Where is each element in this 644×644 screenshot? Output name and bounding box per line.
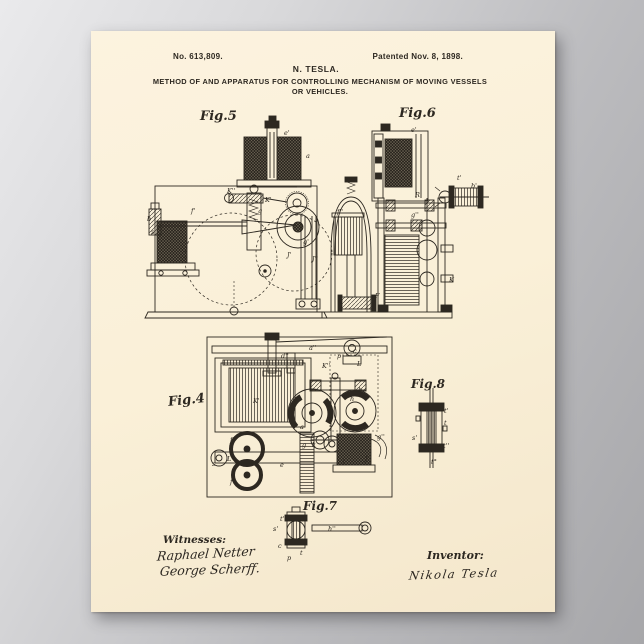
fig8-drawing	[416, 388, 447, 468]
inventor-label: Inventor:	[427, 549, 484, 562]
fig7-drawing	[285, 507, 371, 548]
fig5-label: Fig.5	[200, 109, 237, 124]
fig6-drawing	[322, 124, 489, 318]
fig4-drawing	[207, 333, 392, 497]
patent-poster: No. 613,809. Patented Nov. 8, 1898. N. T…	[91, 31, 555, 612]
patent-drawings	[91, 31, 555, 612]
product-backdrop: No. 613,809. Patented Nov. 8, 1898. N. T…	[0, 0, 644, 644]
fig8-label: Fig.8	[411, 377, 445, 391]
fig7-label: Fig.7	[303, 499, 337, 513]
witnesses-label: Witnesses:	[163, 534, 226, 546]
fig5-drawing	[145, 116, 332, 318]
fig6-label: Fig.6	[399, 106, 436, 121]
